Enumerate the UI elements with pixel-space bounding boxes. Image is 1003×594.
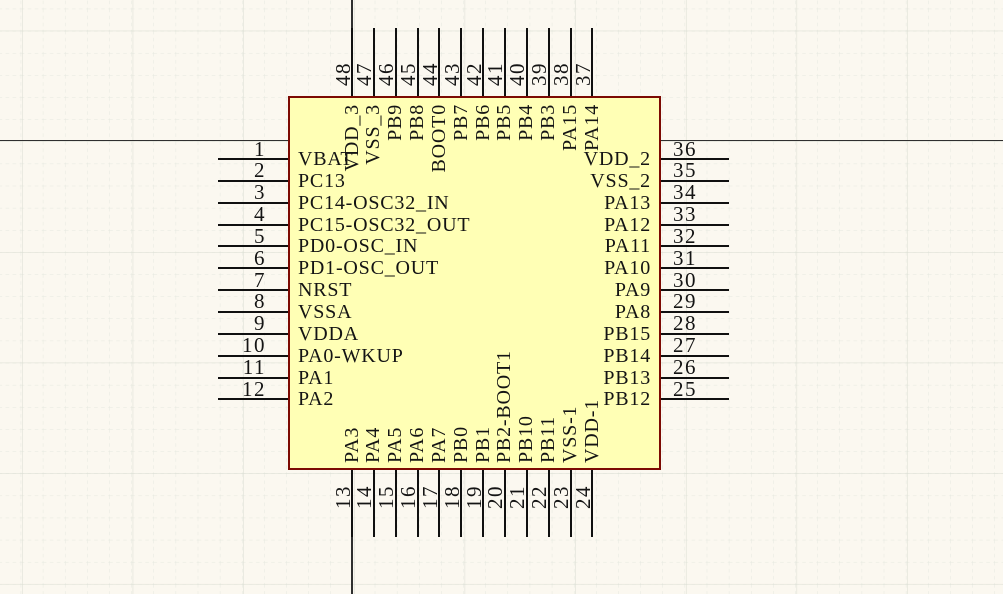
pin-number: 43 — [441, 62, 463, 86]
pin-number: 13 — [332, 485, 354, 509]
pin-number: 48 — [332, 62, 354, 86]
pin-number: 9 — [148, 312, 266, 334]
pin-number: 11 — [148, 356, 266, 378]
pin-number: 22 — [528, 485, 550, 509]
pin-name: PB11 — [537, 416, 559, 463]
pin-number: 4 — [148, 203, 266, 225]
pin-name: VSS-1 — [559, 406, 581, 463]
pin-number: 46 — [375, 62, 397, 86]
pin-name: VDD_2 — [351, 148, 651, 170]
pin-number: 24 — [572, 485, 594, 509]
pin-name: PB8 — [406, 104, 428, 141]
pin-number: 35 — [673, 159, 697, 181]
pin-number: 42 — [463, 62, 485, 86]
pin-number: 15 — [375, 485, 397, 509]
pin-name: PA9 — [351, 279, 651, 301]
pin-name: PA2 — [298, 388, 334, 410]
pin-number: 25 — [673, 378, 697, 400]
pin-number: 18 — [441, 485, 463, 509]
pin-name: PC13 — [298, 170, 346, 192]
pin-name: BOOT0 — [428, 104, 450, 172]
pin-number: 30 — [673, 269, 697, 291]
pin-name: PB15 — [351, 323, 651, 345]
pin-number: 38 — [550, 62, 572, 86]
pin-number: 12 — [148, 378, 266, 400]
pin-name: PA1 — [298, 367, 334, 389]
pin-name: PB10 — [515, 415, 537, 463]
pin-name: PB4 — [515, 104, 537, 141]
pin-number: 17 — [419, 485, 441, 509]
pin-number: 14 — [353, 485, 375, 509]
pin-name: PA14 — [581, 104, 603, 151]
pin-number: 32 — [673, 225, 697, 247]
pin-name: VSS_2 — [351, 170, 651, 192]
pin-name: PA5 — [384, 427, 406, 463]
pin-number: 44 — [419, 62, 441, 86]
pin-number: 10 — [148, 334, 266, 356]
pin-number: 6 — [148, 247, 266, 269]
pin-number: 21 — [506, 485, 528, 509]
pin-name: VDDA — [298, 323, 359, 345]
pin-number: 33 — [673, 203, 697, 225]
pin-name: NRST — [298, 279, 352, 301]
pin-number: 19 — [463, 485, 485, 509]
pin-name: VSSA — [298, 301, 352, 323]
pin-name: PB5 — [493, 104, 515, 141]
pin-number: 20 — [484, 485, 506, 509]
pin-name: PA11 — [351, 235, 651, 257]
pin-number: 5 — [148, 225, 266, 247]
pin-number: 37 — [572, 62, 594, 86]
pin-name: PA13 — [351, 192, 651, 214]
pin-name: PB9 — [384, 104, 406, 141]
pin-number: 36 — [673, 138, 697, 160]
pin-number: 7 — [148, 269, 266, 291]
pin-name: PA4 — [362, 427, 384, 463]
pin-number: 31 — [673, 247, 697, 269]
pin-name: PB1 — [472, 426, 494, 463]
pin-number: 40 — [506, 62, 528, 86]
pin-name: VDD-1 — [581, 399, 603, 463]
pin-number: 45 — [397, 62, 419, 86]
pin-name: PA8 — [351, 301, 651, 323]
pin-number: 2 — [148, 159, 266, 181]
pin-number: 34 — [673, 181, 697, 203]
pin-number: 1 — [148, 138, 266, 160]
pin-number: 8 — [148, 290, 266, 312]
pin-name: PA12 — [351, 214, 651, 236]
pin-name: PA10 — [351, 257, 651, 279]
pin-number: 28 — [673, 312, 697, 334]
pin-name: PA3 — [341, 427, 363, 463]
pin-number: 23 — [550, 485, 572, 509]
pin-number: 39 — [528, 62, 550, 86]
pin-number: 47 — [353, 62, 375, 86]
pin-number: 27 — [673, 334, 697, 356]
pin-number: 26 — [673, 356, 697, 378]
pin-name: PB7 — [450, 104, 472, 141]
pin-name: PA6 — [406, 427, 428, 463]
pin-name: PB0 — [450, 426, 472, 463]
pin-name: PA15 — [559, 104, 581, 151]
pin-name: PB6 — [472, 104, 494, 141]
pin-number: 29 — [673, 290, 697, 312]
pin-name: VSS_3 — [362, 104, 384, 165]
pin-name: VDD_3 — [341, 104, 363, 171]
pin-name: PB2-BOOT1 — [493, 350, 515, 463]
pin-name: PB3 — [537, 104, 559, 141]
pin-number: 3 — [148, 181, 266, 203]
pin-number: 41 — [484, 62, 506, 86]
pin-number: 16 — [397, 485, 419, 509]
schematic-canvas[interactable]: 1234567891011123635343332313029282726254… — [0, 0, 1003, 594]
pin-name: PA7 — [428, 427, 450, 463]
